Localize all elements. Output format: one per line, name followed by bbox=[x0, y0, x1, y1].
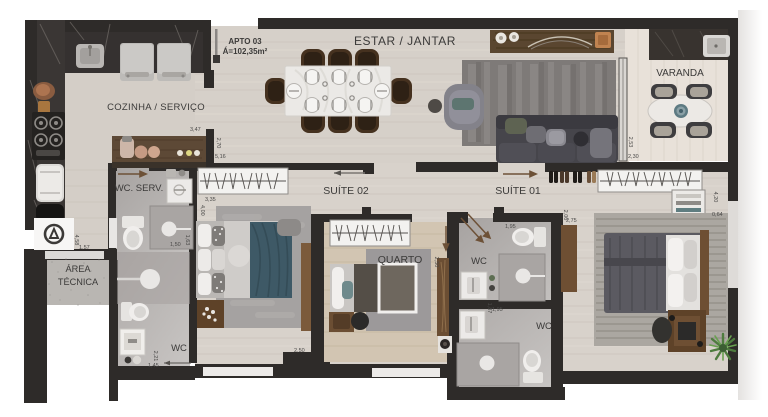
svg-text:WC: WC bbox=[536, 321, 552, 332]
svg-text:2,70: 2,70 bbox=[215, 138, 221, 149]
svg-text:COZINHA / SERVIÇO: COZINHA / SERVIÇO bbox=[107, 102, 205, 113]
svg-text:5,16: 5,16 bbox=[215, 154, 226, 160]
svg-text:0,64: 0,64 bbox=[712, 212, 723, 218]
svg-text:2,75: 2,75 bbox=[566, 218, 577, 224]
svg-text:TÉCNICA: TÉCNICA bbox=[58, 277, 99, 287]
svg-text:1,95: 1,95 bbox=[505, 224, 516, 230]
svg-text:WC. SERV.: WC. SERV. bbox=[115, 183, 164, 194]
svg-text:2,53: 2,53 bbox=[627, 137, 633, 148]
svg-text:SUÍTE 01: SUÍTE 01 bbox=[495, 184, 541, 197]
svg-text:QUARTO: QUARTO bbox=[378, 254, 423, 266]
svg-text:1,63: 1,63 bbox=[184, 235, 190, 246]
svg-text:Á=102,35m²: Á=102,35m² bbox=[223, 47, 268, 56]
svg-text:2,50: 2,50 bbox=[433, 257, 439, 268]
svg-text:3,47: 3,47 bbox=[190, 127, 201, 133]
svg-text:3,35: 3,35 bbox=[205, 197, 216, 203]
svg-text:ESTAR / JANTAR: ESTAR / JANTAR bbox=[354, 34, 456, 48]
svg-text:APTO 03: APTO 03 bbox=[228, 37, 262, 46]
svg-text:1,57: 1,57 bbox=[79, 245, 90, 251]
svg-text:4,00: 4,00 bbox=[199, 205, 205, 216]
svg-text:SUÍTE 02: SUÍTE 02 bbox=[323, 184, 369, 197]
svg-text:2,30: 2,30 bbox=[628, 154, 639, 160]
svg-text:2,21: 2,21 bbox=[152, 351, 158, 362]
svg-text:WC: WC bbox=[471, 256, 487, 267]
svg-text:4,20: 4,20 bbox=[712, 192, 718, 203]
svg-text:4,58: 4,58 bbox=[73, 235, 79, 246]
svg-text:WC: WC bbox=[171, 343, 187, 354]
svg-text:2,50: 2,50 bbox=[294, 348, 305, 354]
svg-text:ÁREA: ÁREA bbox=[65, 264, 91, 274]
svg-text:1,95: 1,95 bbox=[492, 307, 503, 313]
svg-text:VARANDA: VARANDA bbox=[656, 68, 704, 79]
svg-text:1,50: 1,50 bbox=[170, 242, 181, 248]
svg-text:1,45: 1,45 bbox=[148, 363, 159, 369]
